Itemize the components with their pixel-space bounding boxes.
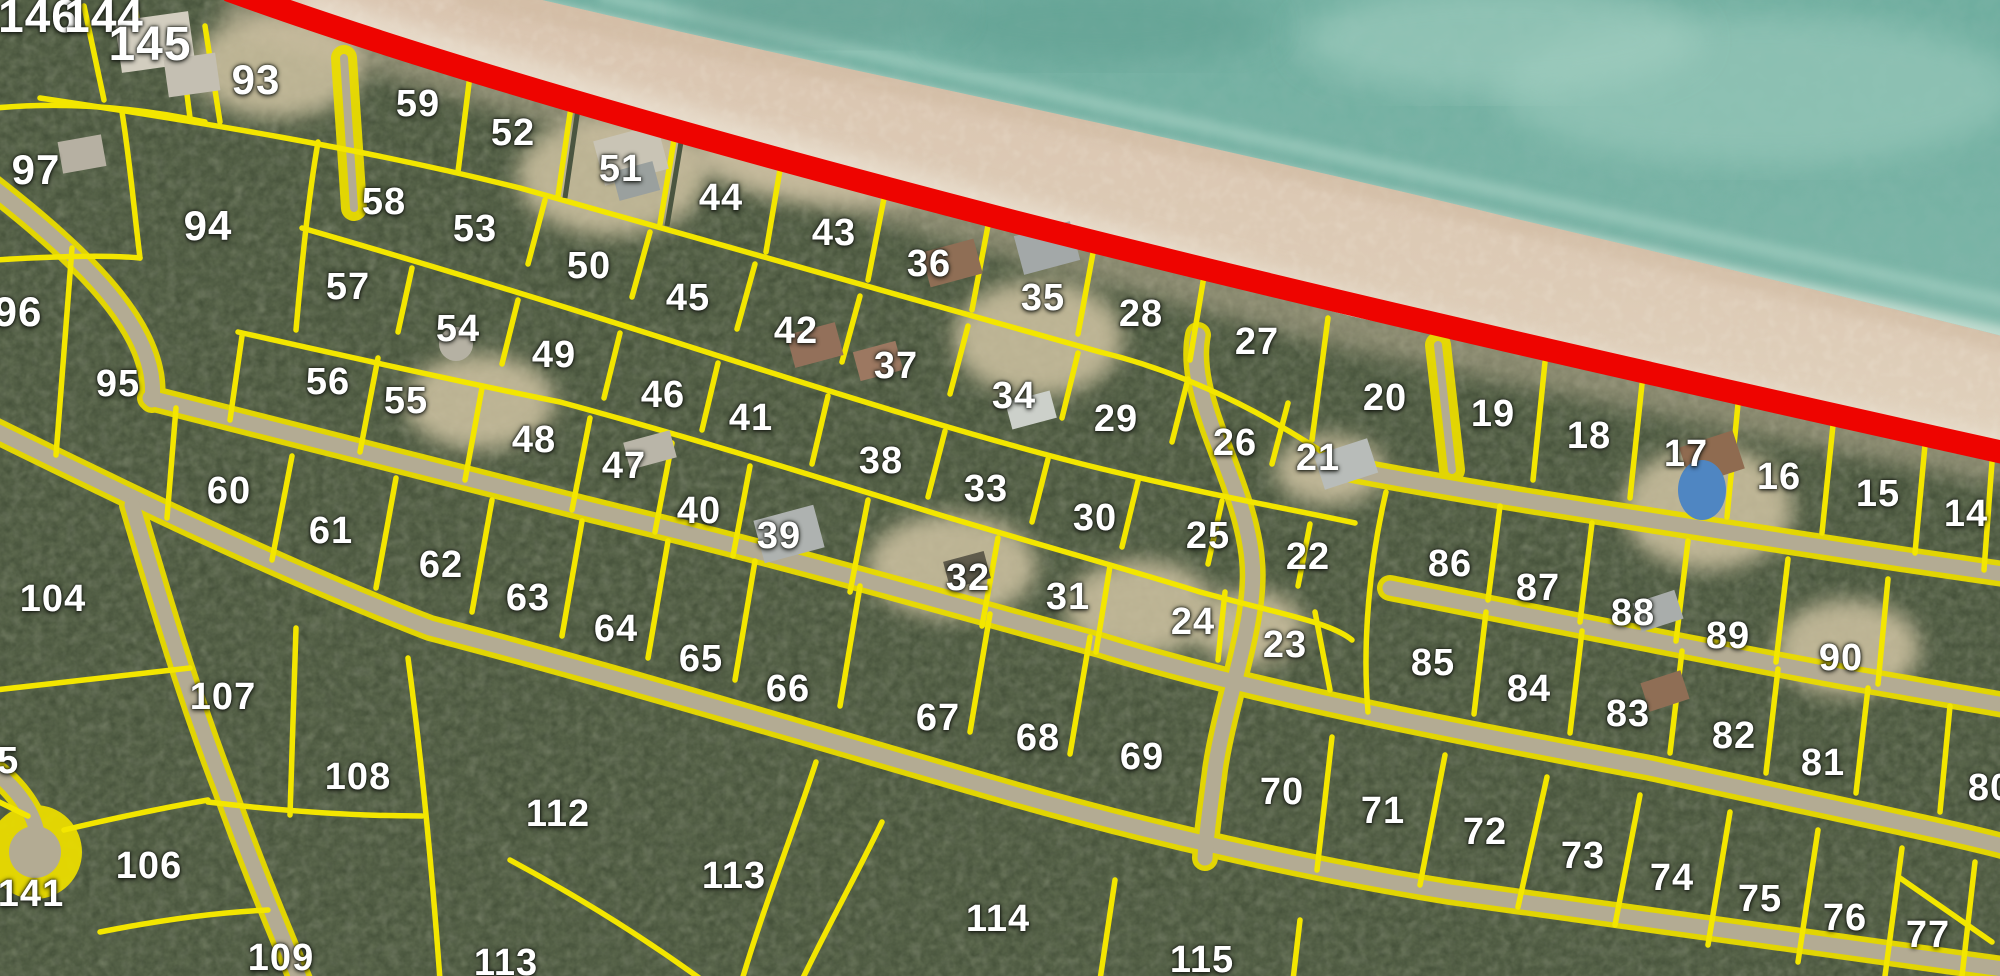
- lot-label-80: 80: [1968, 769, 2000, 807]
- lot-label-96: 96: [0, 291, 42, 333]
- lot-label-86: 86: [1428, 545, 1472, 583]
- lot-label-70: 70: [1260, 773, 1304, 811]
- lot-label-77: 77: [1906, 916, 1950, 954]
- lot-label-52: 52: [491, 114, 535, 152]
- lot-label-37: 37: [874, 347, 918, 385]
- lot-label-107: 107: [190, 678, 256, 716]
- lot-label-93: 93: [232, 59, 281, 101]
- lot-label-73: 73: [1561, 837, 1605, 875]
- lot-label-35: 35: [1021, 279, 1065, 317]
- lot-label-54: 54: [436, 310, 480, 348]
- lot-label-109: 109: [248, 939, 314, 976]
- lot-label-56: 56: [306, 363, 350, 401]
- lot-label-113-92: 113: [474, 944, 538, 976]
- lot-label-106: 106: [116, 847, 182, 885]
- lot-label-76: 76: [1823, 899, 1867, 937]
- lot-label-44: 44: [699, 179, 743, 217]
- lot-label-41: 41: [729, 399, 773, 437]
- lot-label-45: 45: [666, 279, 710, 317]
- lot-label-141: 141: [0, 875, 64, 913]
- lot-label-26: 26: [1213, 424, 1257, 462]
- lot-label-94: 94: [184, 205, 233, 247]
- lot-label-97: 97: [12, 149, 61, 191]
- lot-label-114: 114: [966, 900, 1030, 938]
- lot-label-67: 67: [916, 699, 960, 737]
- lot-label-20: 20: [1363, 379, 1407, 417]
- lot-label-115: 115: [1170, 941, 1234, 976]
- lot-label-104: 104: [20, 580, 86, 618]
- lot-label-34: 34: [992, 377, 1036, 415]
- lot-label-47: 47: [602, 447, 646, 485]
- lot-label-90: 90: [1819, 639, 1863, 677]
- lot-label-32: 32: [946, 559, 990, 597]
- lot-label-29: 29: [1094, 400, 1138, 438]
- lot-label-24: 24: [1171, 603, 1215, 641]
- lot-label-145: 145: [108, 21, 191, 69]
- lot-label-50: 50: [567, 247, 611, 285]
- lot-label-66: 66: [766, 670, 810, 708]
- lot-label-112: 112: [526, 795, 590, 833]
- lot-label-21: 21: [1296, 439, 1340, 477]
- lot-label-108: 108: [325, 758, 391, 796]
- lot-label-27: 27: [1235, 323, 1279, 361]
- lot-label-57: 57: [326, 268, 370, 306]
- lot-labels-layer: 1461441459397949695595857565553545251504…: [0, 0, 2000, 976]
- lot-label-89: 89: [1706, 617, 1750, 655]
- lot-label-17: 17: [1664, 435, 1708, 473]
- lot-label-33: 33: [964, 470, 1008, 508]
- lot-label-61: 61: [309, 512, 353, 550]
- lot-label-68: 68: [1016, 719, 1060, 757]
- lot-label-60: 60: [207, 472, 251, 510]
- lot-label-63: 63: [506, 579, 550, 617]
- lot-label-38: 38: [859, 442, 903, 480]
- lot-label-75: 75: [1738, 880, 1782, 918]
- lot-label-25: 25: [1186, 517, 1230, 555]
- lot-label-88: 88: [1611, 594, 1655, 632]
- lot-label-65: 65: [679, 640, 723, 678]
- lot-label-14: 14: [1944, 495, 1988, 533]
- lot-label-49: 49: [532, 336, 576, 374]
- lot-label-58: 58: [362, 183, 406, 221]
- lot-label-36: 36: [907, 245, 951, 283]
- lot-label-87: 87: [1516, 569, 1560, 607]
- lot-label-39: 39: [757, 517, 801, 555]
- lot-label-105: 105: [0, 742, 19, 780]
- lot-label-83: 83: [1606, 695, 1650, 733]
- lot-label-30: 30: [1073, 499, 1117, 537]
- lot-label-95: 95: [96, 365, 140, 403]
- lot-label-64: 64: [594, 610, 638, 648]
- lot-label-113-91: 113: [702, 857, 766, 895]
- lot-label-16: 16: [1757, 458, 1801, 496]
- lot-label-43: 43: [812, 214, 856, 252]
- lot-label-18: 18: [1567, 417, 1611, 455]
- lot-label-72: 72: [1463, 813, 1507, 851]
- lot-label-48: 48: [512, 421, 556, 459]
- lot-label-19: 19: [1471, 395, 1515, 433]
- lot-label-62: 62: [419, 546, 463, 584]
- lot-label-84: 84: [1507, 670, 1551, 708]
- lot-label-81: 81: [1801, 744, 1845, 782]
- lot-label-42: 42: [774, 312, 818, 350]
- lot-label-71: 71: [1361, 792, 1405, 830]
- lot-label-53: 53: [453, 210, 497, 248]
- lot-label-69: 69: [1120, 738, 1164, 776]
- lot-label-55: 55: [384, 382, 428, 420]
- lot-label-74: 74: [1650, 859, 1694, 897]
- lot-label-23: 23: [1263, 626, 1307, 664]
- lot-label-28: 28: [1119, 295, 1163, 333]
- lot-label-85: 85: [1411, 644, 1455, 682]
- lot-label-59: 59: [396, 85, 440, 123]
- lot-label-82: 82: [1712, 717, 1756, 755]
- lot-label-31: 31: [1046, 578, 1090, 616]
- plat-map: 1461441459397949695595857565553545251504…: [0, 0, 2000, 976]
- lot-label-46: 46: [641, 376, 685, 414]
- lot-label-40: 40: [677, 492, 721, 530]
- lot-label-15: 15: [1856, 475, 1900, 513]
- lot-label-51: 51: [599, 150, 643, 188]
- lot-label-22: 22: [1286, 538, 1330, 576]
